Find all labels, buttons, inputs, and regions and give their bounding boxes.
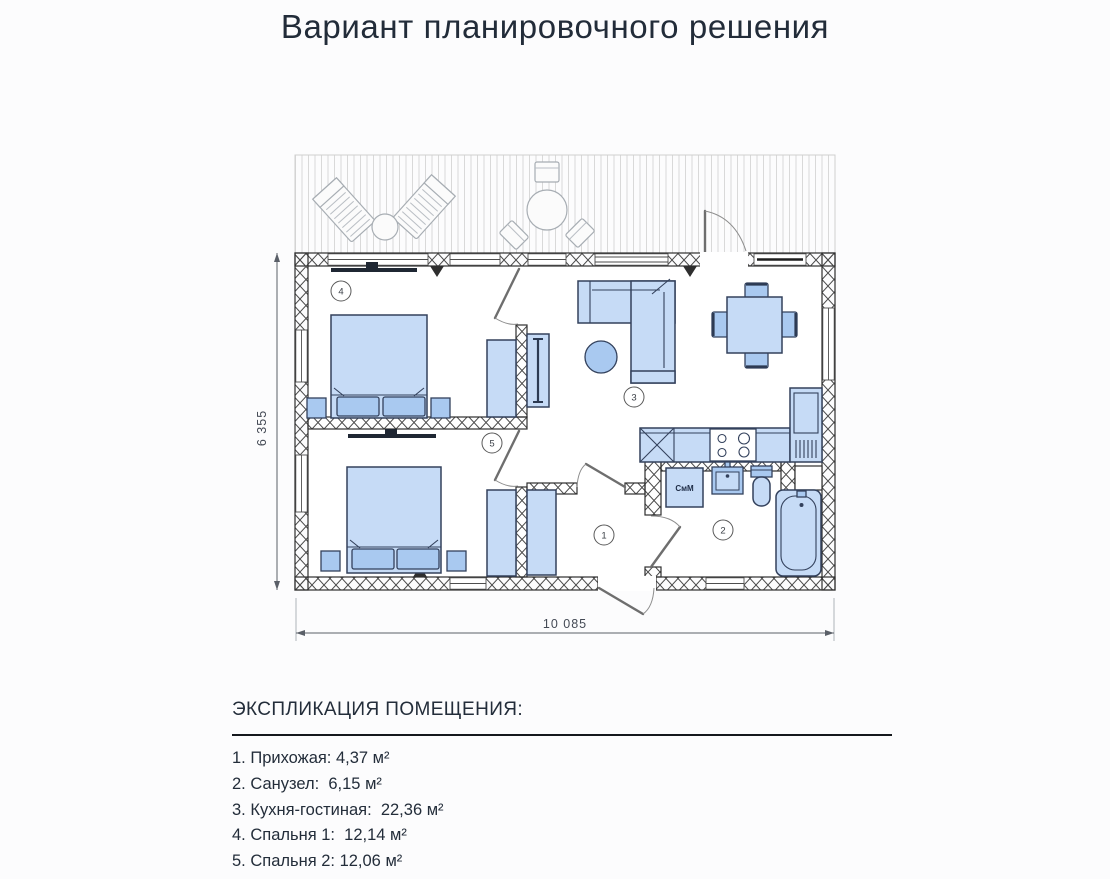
pillow-icon [352,549,394,569]
explication-item: 1. Прихожая: 4,37 м² [232,746,892,772]
window [450,254,500,265]
window [595,254,668,265]
nightstand-icon [447,551,466,571]
explication: ЭКСПЛИКАЦИЯ ПОМЕЩЕНИЯ: 1. Прихожая: 4,37… [232,699,892,875]
wall-bottom [295,577,598,590]
tv-icon [331,268,417,272]
wall-middle [516,325,527,417]
dimension-width: 10 085 [296,598,834,641]
hall-closet-icon [527,490,556,575]
explication-item: 3. Кухня-гостиная: 22,36 м² [232,798,892,824]
room-marker-number: 3 [631,393,636,404]
terrace [295,155,835,253]
room-marker-number: 2 [720,526,725,537]
wardrobe-icon [487,490,516,576]
wall-middle [516,487,527,577]
window [528,254,566,265]
window [823,308,834,380]
dimension-height: 6 355 [255,253,280,590]
explication-rule [232,734,892,736]
tv-mount-icon [366,262,378,269]
hallway: 1 [594,525,614,545]
wall-hall-bath [645,567,661,577]
closet-rail-icon [527,334,549,407]
dimension-width-label: 10 085 [543,617,587,631]
explication-item: 4. Спальня 1: 12,14 м² [232,823,892,849]
explication-item: 5. Спальня 2: 12,06 м² [232,849,892,875]
wall-bottom [656,577,835,590]
washing-machine-icon: СмМ [666,468,703,507]
wall-right [822,253,835,590]
room-marker-number: 4 [338,287,343,298]
wall-left [295,253,308,590]
window [450,578,486,589]
pillow-icon [337,397,379,416]
bath-shelf-icon [795,466,822,490]
explication-item: 2. Санузел: 6,15 м² [232,772,892,798]
room-marker-number: 5 [489,439,494,450]
window [296,455,307,512]
door-opening [700,252,748,267]
explication-heading: ЭКСПЛИКАЦИЯ ПОМЕЩЕНИЯ: [232,699,892,721]
window [706,578,744,589]
toilet-icon [751,466,772,506]
nightstand-icon [431,398,450,418]
pillow-icon [397,549,439,569]
tv-icon [348,434,436,438]
explication-list: 1. Прихожая: 4,37 м² 2. Санузел: 6,15 м²… [232,746,892,875]
terrace-side-table-icon [372,214,398,240]
window [754,254,806,265]
coffee-table-icon [585,341,617,373]
sink-icon [712,462,743,494]
stove-icon [710,429,756,461]
wall-pier [781,461,795,492]
page: Вариант планировочного решения [0,0,1110,879]
pillow-icon [383,397,425,416]
fridge-icon [790,388,822,462]
wall-hall-bath [645,461,661,515]
washing-machine-label: СмМ [675,484,694,493]
entrance-opening [598,576,656,591]
wall-between-bedrooms [308,417,527,429]
window [296,330,307,382]
nightstand-icon [321,551,340,571]
room-marker-number: 1 [601,531,606,542]
nightstand-icon [307,398,326,418]
wardrobe-icon [487,340,516,417]
dimension-height-label: 6 355 [255,410,269,446]
entrance-door [599,588,654,614]
wall-hall-top [625,483,645,494]
bathtub-icon [776,490,821,576]
